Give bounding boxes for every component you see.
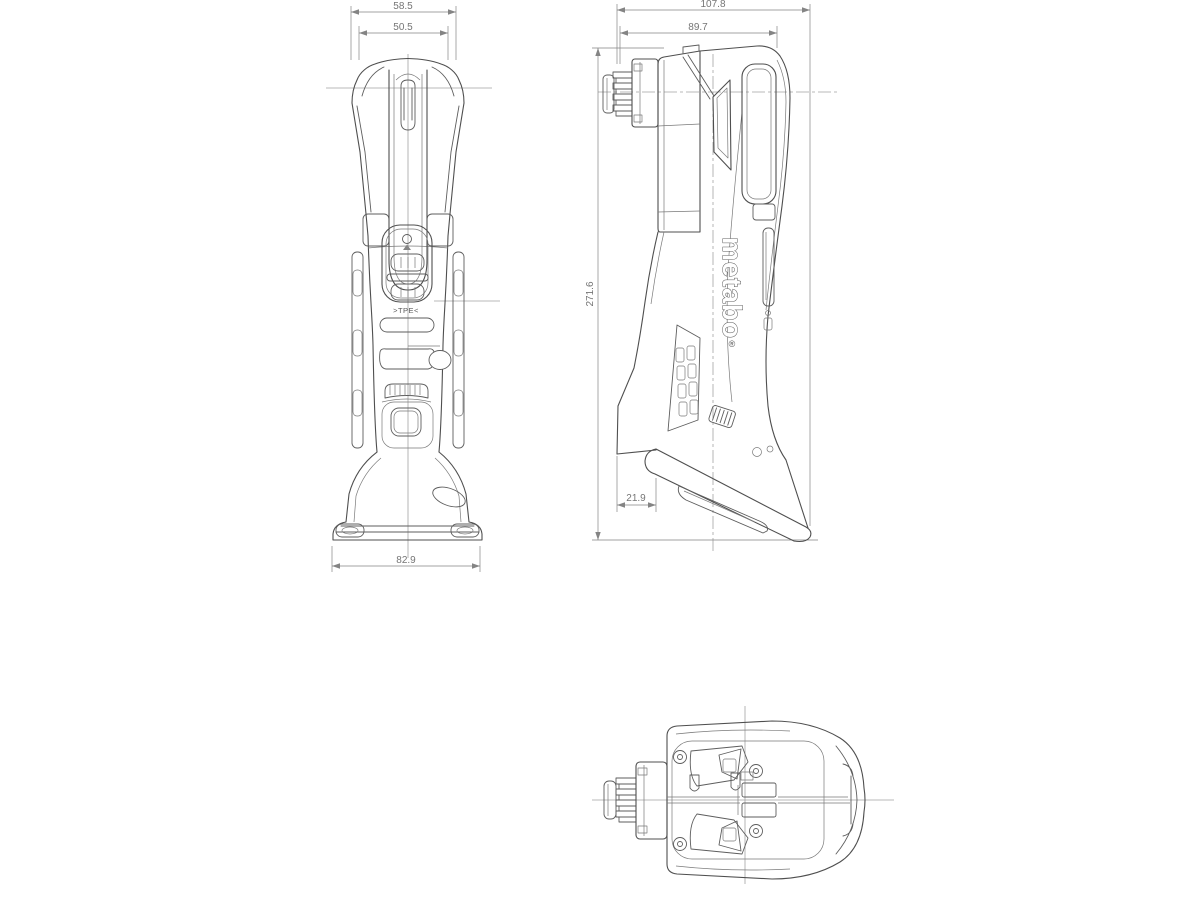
- center-block-upper: [742, 783, 776, 797]
- base-wing-contours: [354, 458, 461, 522]
- left-grip-bump: [353, 390, 362, 416]
- lever-pillar-inner: [747, 69, 771, 199]
- drawing-canvas: 58.5 50.5 82.9: [0, 0, 1200, 900]
- right-grip-bump: [454, 270, 463, 296]
- side-body: [617, 46, 808, 528]
- dim-head-width-inner: 50.5: [393, 22, 413, 33]
- flange-step: [634, 64, 642, 71]
- lower-panel: [382, 402, 433, 448]
- side-vent-grille: [668, 325, 700, 431]
- serration: [619, 784, 636, 789]
- gear-head-joints: [658, 60, 700, 230]
- dim-depth-overall: 107.8: [700, 0, 725, 10]
- base-left-foot-inner: [342, 527, 358, 534]
- vent-slot: [688, 364, 696, 378]
- lever-blade-inner: [717, 88, 728, 158]
- right-grip-bump: [454, 330, 463, 356]
- side-outline-left: [617, 232, 658, 454]
- registered-mark: ®: [729, 339, 736, 349]
- teardrop-holes: [690, 773, 740, 791]
- front-view: 58.5 50.5 82.9: [326, 1, 500, 572]
- upper-wedge-square: [723, 759, 736, 772]
- screw: [674, 751, 687, 764]
- top-screws: [674, 751, 763, 851]
- grip-recess-lower: [380, 349, 435, 369]
- left-grip-bump: [353, 330, 362, 356]
- top-view: [592, 706, 894, 884]
- latch-strip: [763, 228, 774, 306]
- release-pad-ribs: [713, 408, 732, 425]
- vent-slot: [690, 400, 698, 414]
- flange-step: [638, 768, 647, 775]
- side-extension-lines: [592, 4, 818, 540]
- right-grip-bump: [454, 390, 463, 416]
- vent-slot: [679, 402, 687, 416]
- center-block-lower: [742, 803, 776, 817]
- spindle-flange: [632, 59, 658, 127]
- lower-button-inner: [394, 411, 418, 433]
- base-right-foot-inner: [457, 527, 473, 534]
- vent-slot: [687, 346, 695, 360]
- vent-slot: [677, 366, 685, 380]
- flange-step: [638, 826, 647, 833]
- foot-panel-line: [684, 491, 755, 522]
- dim-depth-body: 89.7: [688, 22, 708, 33]
- spindle-serrations: [613, 72, 632, 116]
- lower-wedge-square: [723, 828, 736, 841]
- screw: [674, 838, 687, 851]
- side-release-pad: [708, 405, 736, 429]
- dim-height-overall: 271.6: [585, 281, 596, 306]
- serration: [619, 795, 636, 800]
- top-centerlines: [592, 706, 894, 884]
- base-outline: [333, 452, 482, 540]
- screw: [750, 765, 763, 778]
- switch-upper-ribs: [401, 257, 415, 268]
- serration: [619, 806, 636, 811]
- spindle-cap: [603, 75, 614, 113]
- vent-slot: [676, 348, 684, 362]
- serration: [616, 800, 636, 806]
- side-foot: [617, 446, 811, 542]
- foot-detail-circle: [767, 446, 773, 452]
- side-clamp-lever: [683, 55, 776, 220]
- switch-upper-pad: [391, 254, 424, 271]
- switch-mid-bar: [387, 274, 428, 281]
- technical-drawing-page: 58.5 50.5 82.9: [0, 0, 1200, 900]
- dim-foot-offset: 21.9: [626, 493, 646, 504]
- serration: [616, 789, 636, 795]
- dim-base-width: 82.9: [396, 555, 416, 566]
- front-outline-left: [352, 59, 408, 453]
- foot-detail-circle: [753, 448, 762, 457]
- foot-panel: [678, 486, 767, 533]
- serration: [613, 94, 632, 100]
- serration: [616, 89, 632, 94]
- serration: [616, 778, 636, 784]
- side-spindle: [603, 59, 658, 127]
- dim-head-width-outer: 58.5: [393, 1, 413, 12]
- metabo-logo: metabo: [717, 237, 747, 339]
- grip-recess-upper: [380, 318, 434, 332]
- tpe-marking: >TPE<: [393, 306, 419, 315]
- upper-wedge-inner: [719, 749, 741, 779]
- side-dimensions: 107.8 89.7 271.6 21.9: [585, 0, 818, 540]
- serration: [613, 72, 632, 78]
- speed-dial: [385, 384, 428, 398]
- lever-tab: [753, 204, 775, 220]
- serration: [616, 811, 636, 817]
- vent-slot: [678, 384, 686, 398]
- front-outline-right: [408, 59, 464, 453]
- serration: [613, 83, 632, 89]
- serration: [616, 78, 632, 83]
- speed-dial-ribs: [382, 385, 431, 402]
- serration: [616, 111, 632, 116]
- screw: [750, 825, 763, 838]
- grille-slots: [676, 346, 698, 416]
- lower-button: [391, 408, 421, 436]
- side-view: 107.8 89.7 271.6 21.9: [585, 0, 838, 553]
- foot-wedge: [617, 449, 811, 542]
- base-blob-detail: [430, 483, 468, 511]
- right-grip-strip: [453, 252, 464, 448]
- left-grip-strip: [352, 252, 363, 448]
- switch-arrow-marker: [403, 245, 411, 251]
- serration: [616, 100, 632, 105]
- switch-pivot-circle: [403, 235, 412, 244]
- serration: [619, 817, 636, 822]
- serration: [613, 105, 632, 111]
- front-extension-lines: [332, 6, 480, 572]
- switch-lower-ribs: [401, 287, 415, 297]
- lower-wedge-inner: [719, 821, 741, 851]
- vent-slot: [689, 382, 697, 396]
- spindle-flange: [636, 762, 667, 839]
- top-spindle: [604, 762, 667, 839]
- front-base: [333, 452, 482, 540]
- flange-step: [634, 115, 642, 122]
- round-boss: [429, 351, 451, 370]
- left-grip-bump: [353, 270, 362, 296]
- spindle-serrations: [616, 778, 636, 822]
- lower-wedge: [690, 814, 748, 854]
